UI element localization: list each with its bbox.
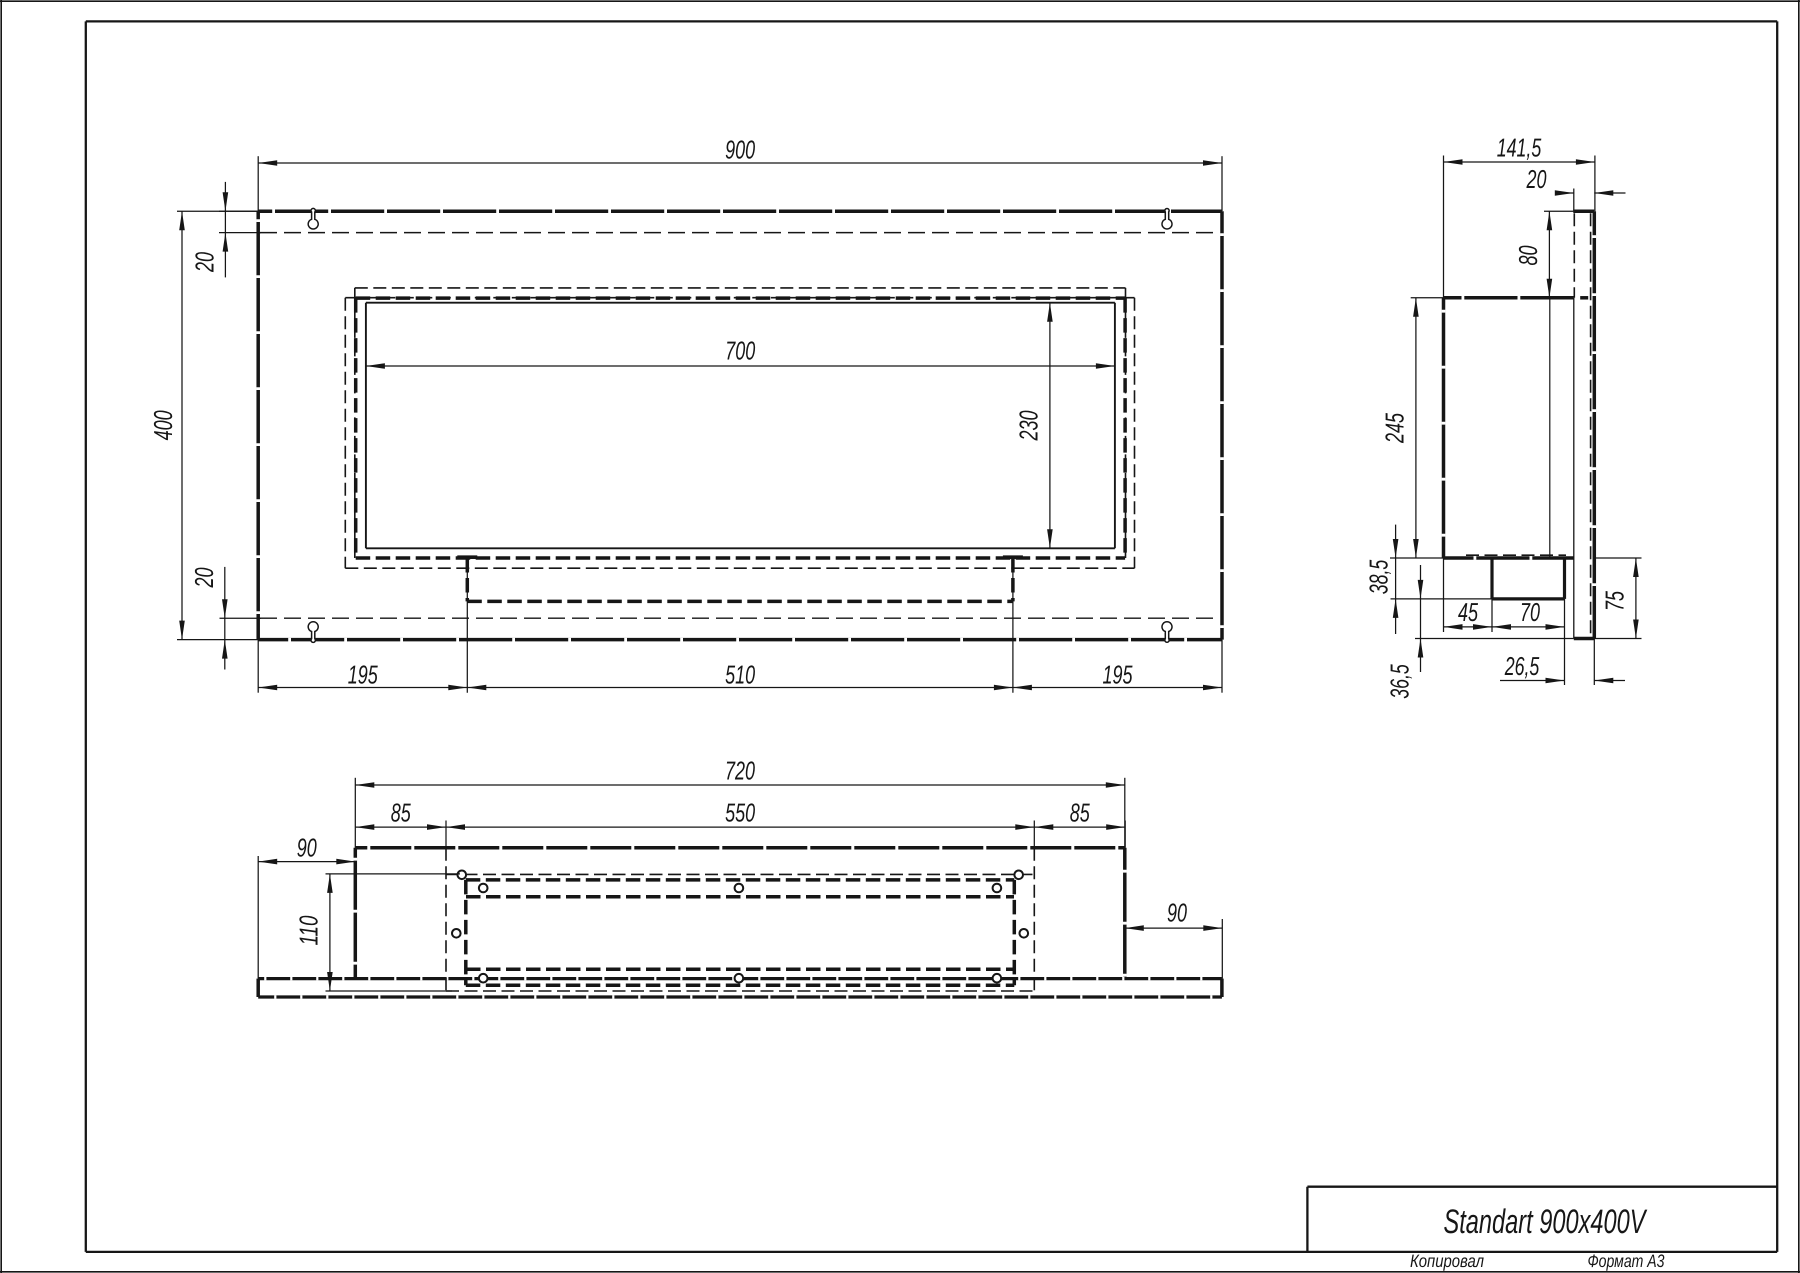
svg-text:20: 20 <box>189 567 219 588</box>
svg-text:510: 510 <box>725 660 755 690</box>
svg-text:20: 20 <box>1526 164 1547 194</box>
svg-text:195: 195 <box>348 660 378 690</box>
svg-text:700: 700 <box>725 336 755 366</box>
svg-text:38,5: 38,5 <box>1364 559 1394 594</box>
svg-text:110: 110 <box>293 915 323 945</box>
svg-text:Standart 900x400V: Standart 900x400V <box>1444 1203 1648 1241</box>
svg-text:36,5: 36,5 <box>1385 664 1415 699</box>
svg-text:80: 80 <box>1513 245 1543 265</box>
svg-text:20: 20 <box>190 252 220 273</box>
svg-text:90: 90 <box>297 832 317 862</box>
svg-text:Копировал: Копировал <box>1410 1251 1484 1271</box>
svg-text:245: 245 <box>1380 413 1410 444</box>
svg-text:550: 550 <box>725 798 755 828</box>
svg-text:230: 230 <box>1014 410 1044 441</box>
svg-text:Формат А3: Формат А3 <box>1588 1251 1665 1271</box>
svg-text:85: 85 <box>1070 798 1090 828</box>
svg-text:85: 85 <box>391 798 411 828</box>
svg-text:900: 900 <box>725 135 755 165</box>
svg-text:26,5: 26,5 <box>1504 651 1540 681</box>
svg-text:70: 70 <box>1520 597 1540 627</box>
svg-text:720: 720 <box>725 756 755 786</box>
svg-text:45: 45 <box>1458 597 1478 627</box>
svg-text:75: 75 <box>1600 591 1630 611</box>
svg-text:90: 90 <box>1167 898 1187 928</box>
svg-text:141,5: 141,5 <box>1497 133 1542 163</box>
svg-text:400: 400 <box>148 410 178 440</box>
svg-text:195: 195 <box>1103 660 1133 690</box>
